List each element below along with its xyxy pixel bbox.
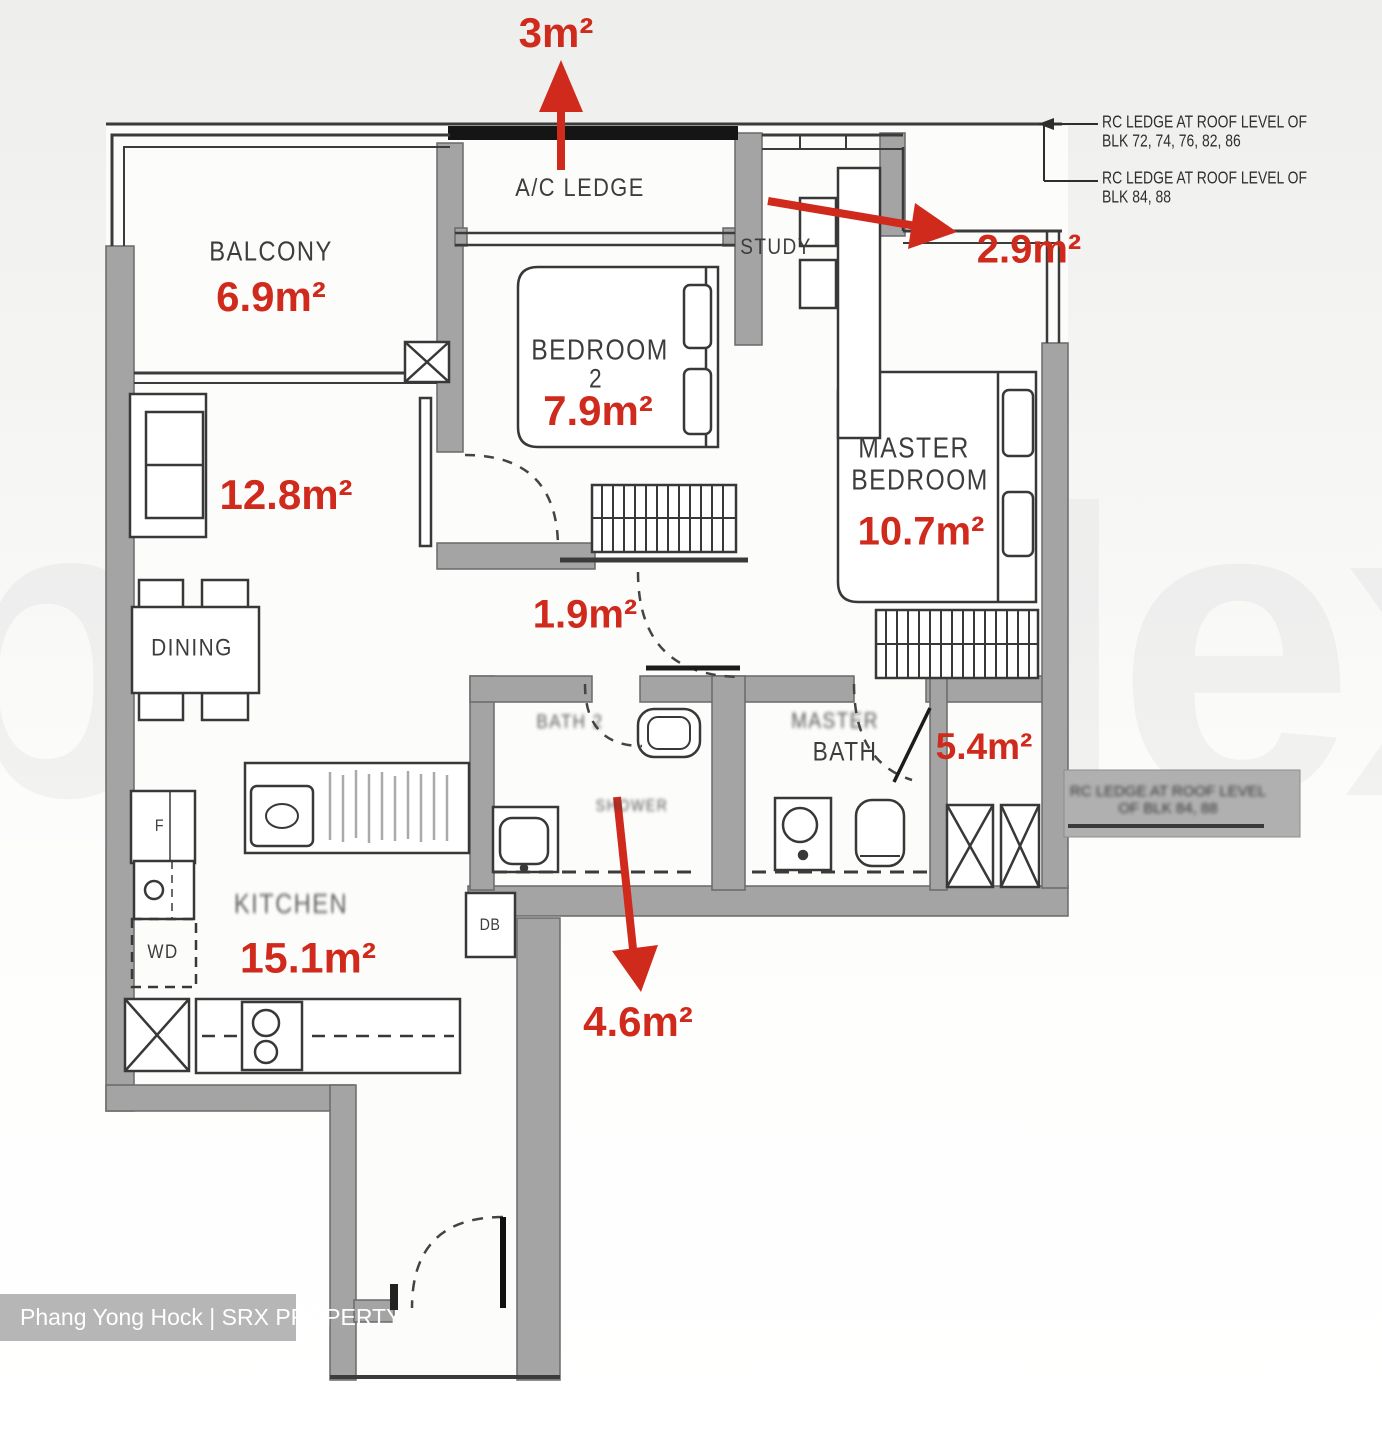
bedroom2-area: 7.9m² [543,387,653,435]
master-bedroom-area: 10.7m² [858,510,985,555]
bath2-vanity [493,807,558,872]
master-bedroom-label-1: MASTER [858,431,969,465]
tv-console [420,398,431,546]
foyer-area: 4.6m² [583,998,693,1046]
wd-label: WD [147,940,178,963]
bedroom2-wardrobe [592,485,736,552]
balcony-area: 6.9m² [216,273,326,321]
sofa [130,394,206,537]
study-label: STUDY [740,235,812,260]
kitchen-counter-bottom [196,999,460,1073]
kitchen-shaft [125,999,189,1071]
master-wardrobe [876,610,1038,678]
rc-ledge-note-1: RC LEDGE AT ROOF LEVEL OF BLK 72, 74, 76… [1102,112,1307,151]
living-area: 12.8m² [219,471,352,519]
floorplan-linework [0,0,1382,1440]
master-bath-vanity [775,798,831,870]
balcony-shaft-box [405,342,449,382]
balcony-label: BALCONY [209,236,332,268]
master-bath-prefix-label: MASTER [791,709,879,734]
side-ledge-label: RC LEDGE AT ROOF LEVEL OF BLK 84, 88 [1070,783,1266,817]
dining-label: DINING [151,634,233,663]
rc-ledge-note-2: RC LEDGE AT ROOF LEVEL OF BLK 84, 88 [1102,168,1307,207]
ac-ledge-area: 3m² [519,9,594,57]
credit-watermark: Phang Yong Hock | SRX PROPERTY [0,1294,296,1341]
master-bath-toilet [856,800,904,866]
floorplan-canvas: propNex [0,0,1382,1440]
hallway-area: 1.9m² [533,593,638,638]
bath2-toilet [638,709,700,757]
master-bath-area: 5.4m² [936,726,1033,768]
kitchen-counter-top [245,763,469,853]
db-label: DB [480,916,501,935]
study-area: 2.9m² [977,228,1082,273]
ac-ledge-exterior-wall [448,126,738,140]
fridge-label: F [155,817,165,836]
master-bath-label: BATH [813,738,878,769]
service-shaft-2 [1001,805,1039,887]
ac-ledge-label: A/C LEDGE [515,173,644,203]
master-bedroom-label-2: BEDROOM [851,463,989,497]
kitchen-area: 15.1m² [240,935,376,984]
kitchen-label: KITCHEN [234,889,348,921]
bedroom2-label: BEDROOM [531,333,669,367]
shower-label: SHOWER [596,797,669,816]
service-shaft-1 [947,805,993,887]
appliance-box [134,861,194,919]
bath2-label: BATH 2 [536,710,603,733]
